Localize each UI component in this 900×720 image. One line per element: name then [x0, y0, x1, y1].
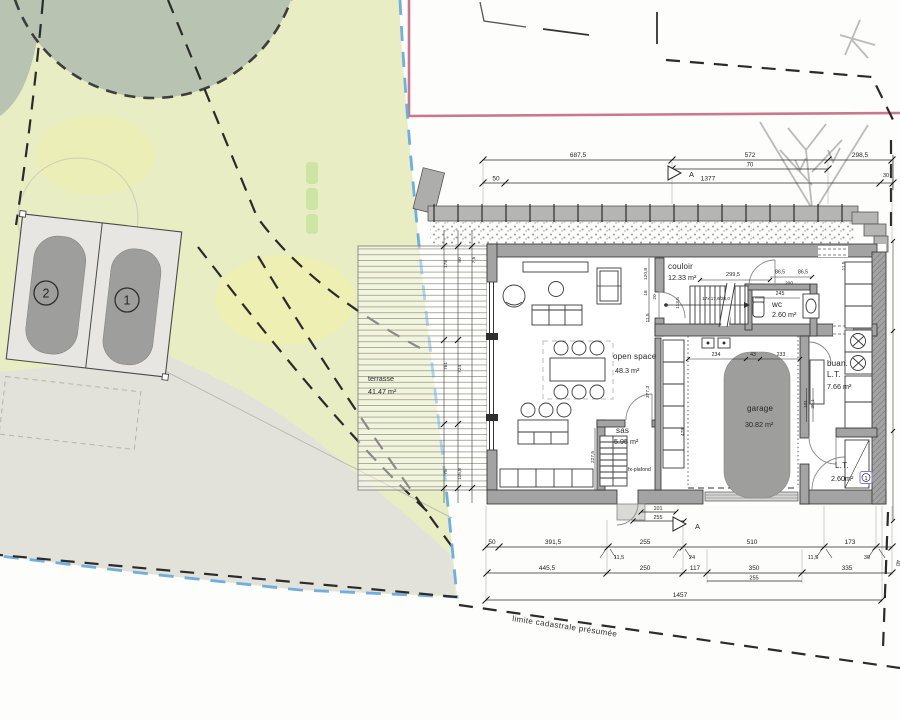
dim-label: 101: [803, 400, 809, 408]
dim-label: 50: [492, 176, 500, 183]
dim-label: 40: [894, 560, 900, 566]
dim-label: 1377: [701, 176, 716, 183]
dim-label: 510: [747, 539, 758, 546]
hedge-marks: [306, 162, 318, 234]
dim-label: 250: [640, 565, 651, 572]
dim-label: 20: [652, 294, 658, 300]
lt-label: L.T.: [835, 461, 849, 470]
terrace-deck: [358, 230, 487, 503]
dim-label: 30,1: [810, 399, 816, 409]
sideboard: [523, 262, 588, 272]
stall-1-number: 1: [124, 294, 131, 308]
site-plan-canvas: 2 1: [0, 0, 900, 720]
dim-label: 11,5: [645, 313, 651, 322]
dim-label: 572: [745, 152, 756, 159]
stall-2-number: 2: [43, 287, 50, 301]
buanderie-area: 7.66 m²: [827, 382, 852, 391]
dim-label: 245: [776, 291, 785, 297]
dim-label: 11,5: [808, 555, 818, 561]
architectural-plan-svg: 2 1: [0, 0, 900, 720]
wc-label: wc: [771, 300, 782, 309]
dim-label: 18: [643, 290, 649, 296]
dim-label: 173: [845, 539, 856, 546]
dim-label: 120,8: [643, 268, 649, 280]
dim-label: 86,5: [798, 270, 808, 276]
dining-table: [550, 358, 605, 381]
dim-label: 86,5: [775, 270, 785, 276]
buanderie-label-2: L.T.: [827, 370, 841, 379]
section-letter-top: A: [689, 170, 694, 179]
wc-area: 2.60 m²: [772, 310, 797, 319]
dim-label: 234: [712, 352, 721, 358]
gravel-strip: [413, 168, 888, 252]
wall-shelving: [663, 340, 684, 468]
house: [486, 244, 886, 525]
dim-label: 70: [747, 163, 754, 169]
sas-area: 5.95 m²: [614, 437, 639, 446]
sas-note: fx-plafond: [628, 467, 651, 473]
open-space-label: open space: [613, 352, 657, 361]
dim-label: 7,5: [471, 256, 477, 263]
dim-label: 113,5: [675, 297, 681, 309]
sofa: [532, 305, 582, 325]
kitchen-counter: [500, 469, 593, 487]
wardrobe: [845, 262, 872, 328]
dim-label: 233: [777, 352, 786, 358]
dim-label: 687,5: [570, 152, 587, 159]
couloir-area: 12.33 m²: [668, 273, 697, 282]
dim-label: 478: [680, 428, 686, 436]
dim-label: 391,5: [545, 539, 562, 546]
section-marker-top: [668, 166, 681, 180]
dim-label: 255: [749, 576, 758, 582]
dim-label: 761: [443, 362, 449, 370]
dim-label: 101: [654, 506, 663, 512]
wc-sink: [803, 294, 819, 318]
boiler: [810, 360, 824, 404]
garage-area: 30.82 m²: [745, 420, 774, 429]
dim-label: 724: [457, 365, 463, 373]
open-space-area: 48.3 m²: [615, 366, 640, 375]
dim-label: 255: [654, 515, 663, 521]
buanderie-label: buan.: [827, 359, 848, 368]
dim-label: 43: [750, 352, 756, 358]
dim-label: 75: [443, 469, 449, 475]
parking-area: [3, 211, 185, 381]
toilet: [753, 301, 764, 317]
lt-badge-number: 1: [864, 476, 867, 482]
lt-area: 2.60m²: [831, 474, 854, 483]
section-marker-bottom: [673, 517, 686, 531]
stairs-label: 17x 17,6/28,0: [702, 296, 730, 301]
dim-label: 117: [690, 565, 701, 572]
section-letter-bottom: A: [695, 522, 700, 531]
dim-label: 298,5: [852, 152, 869, 159]
dim-label: 24: [689, 555, 695, 561]
dim-label: 11,5: [614, 555, 624, 561]
garage-label: garage: [747, 404, 773, 413]
dim-label: 335: [842, 565, 853, 572]
dim-label: 11,5: [841, 261, 847, 270]
terrasse-area: 41.47 m²: [368, 387, 397, 396]
dim-label: 227,5: [590, 451, 596, 463]
dim-label: 178: [443, 260, 449, 268]
terrasse-label: terrasse: [368, 374, 394, 383]
dim-label: 30: [864, 555, 870, 561]
dim-label: 377,3: [645, 386, 651, 398]
dim-label: 1457: [673, 592, 688, 599]
dim-label: 299,5: [726, 272, 740, 278]
dim-label: 50: [488, 539, 496, 546]
couloir-label: couloir: [668, 262, 693, 271]
dim-label: 50: [457, 257, 463, 263]
dim-label: 445,5: [539, 565, 556, 572]
dim-label: 200: [785, 281, 793, 287]
sas-label: sas: [616, 426, 629, 435]
dim-label: 350: [749, 565, 760, 572]
dim-label: 30: [883, 173, 889, 179]
dim-label: 255: [640, 539, 651, 546]
dim-label: 115,8: [457, 468, 463, 480]
